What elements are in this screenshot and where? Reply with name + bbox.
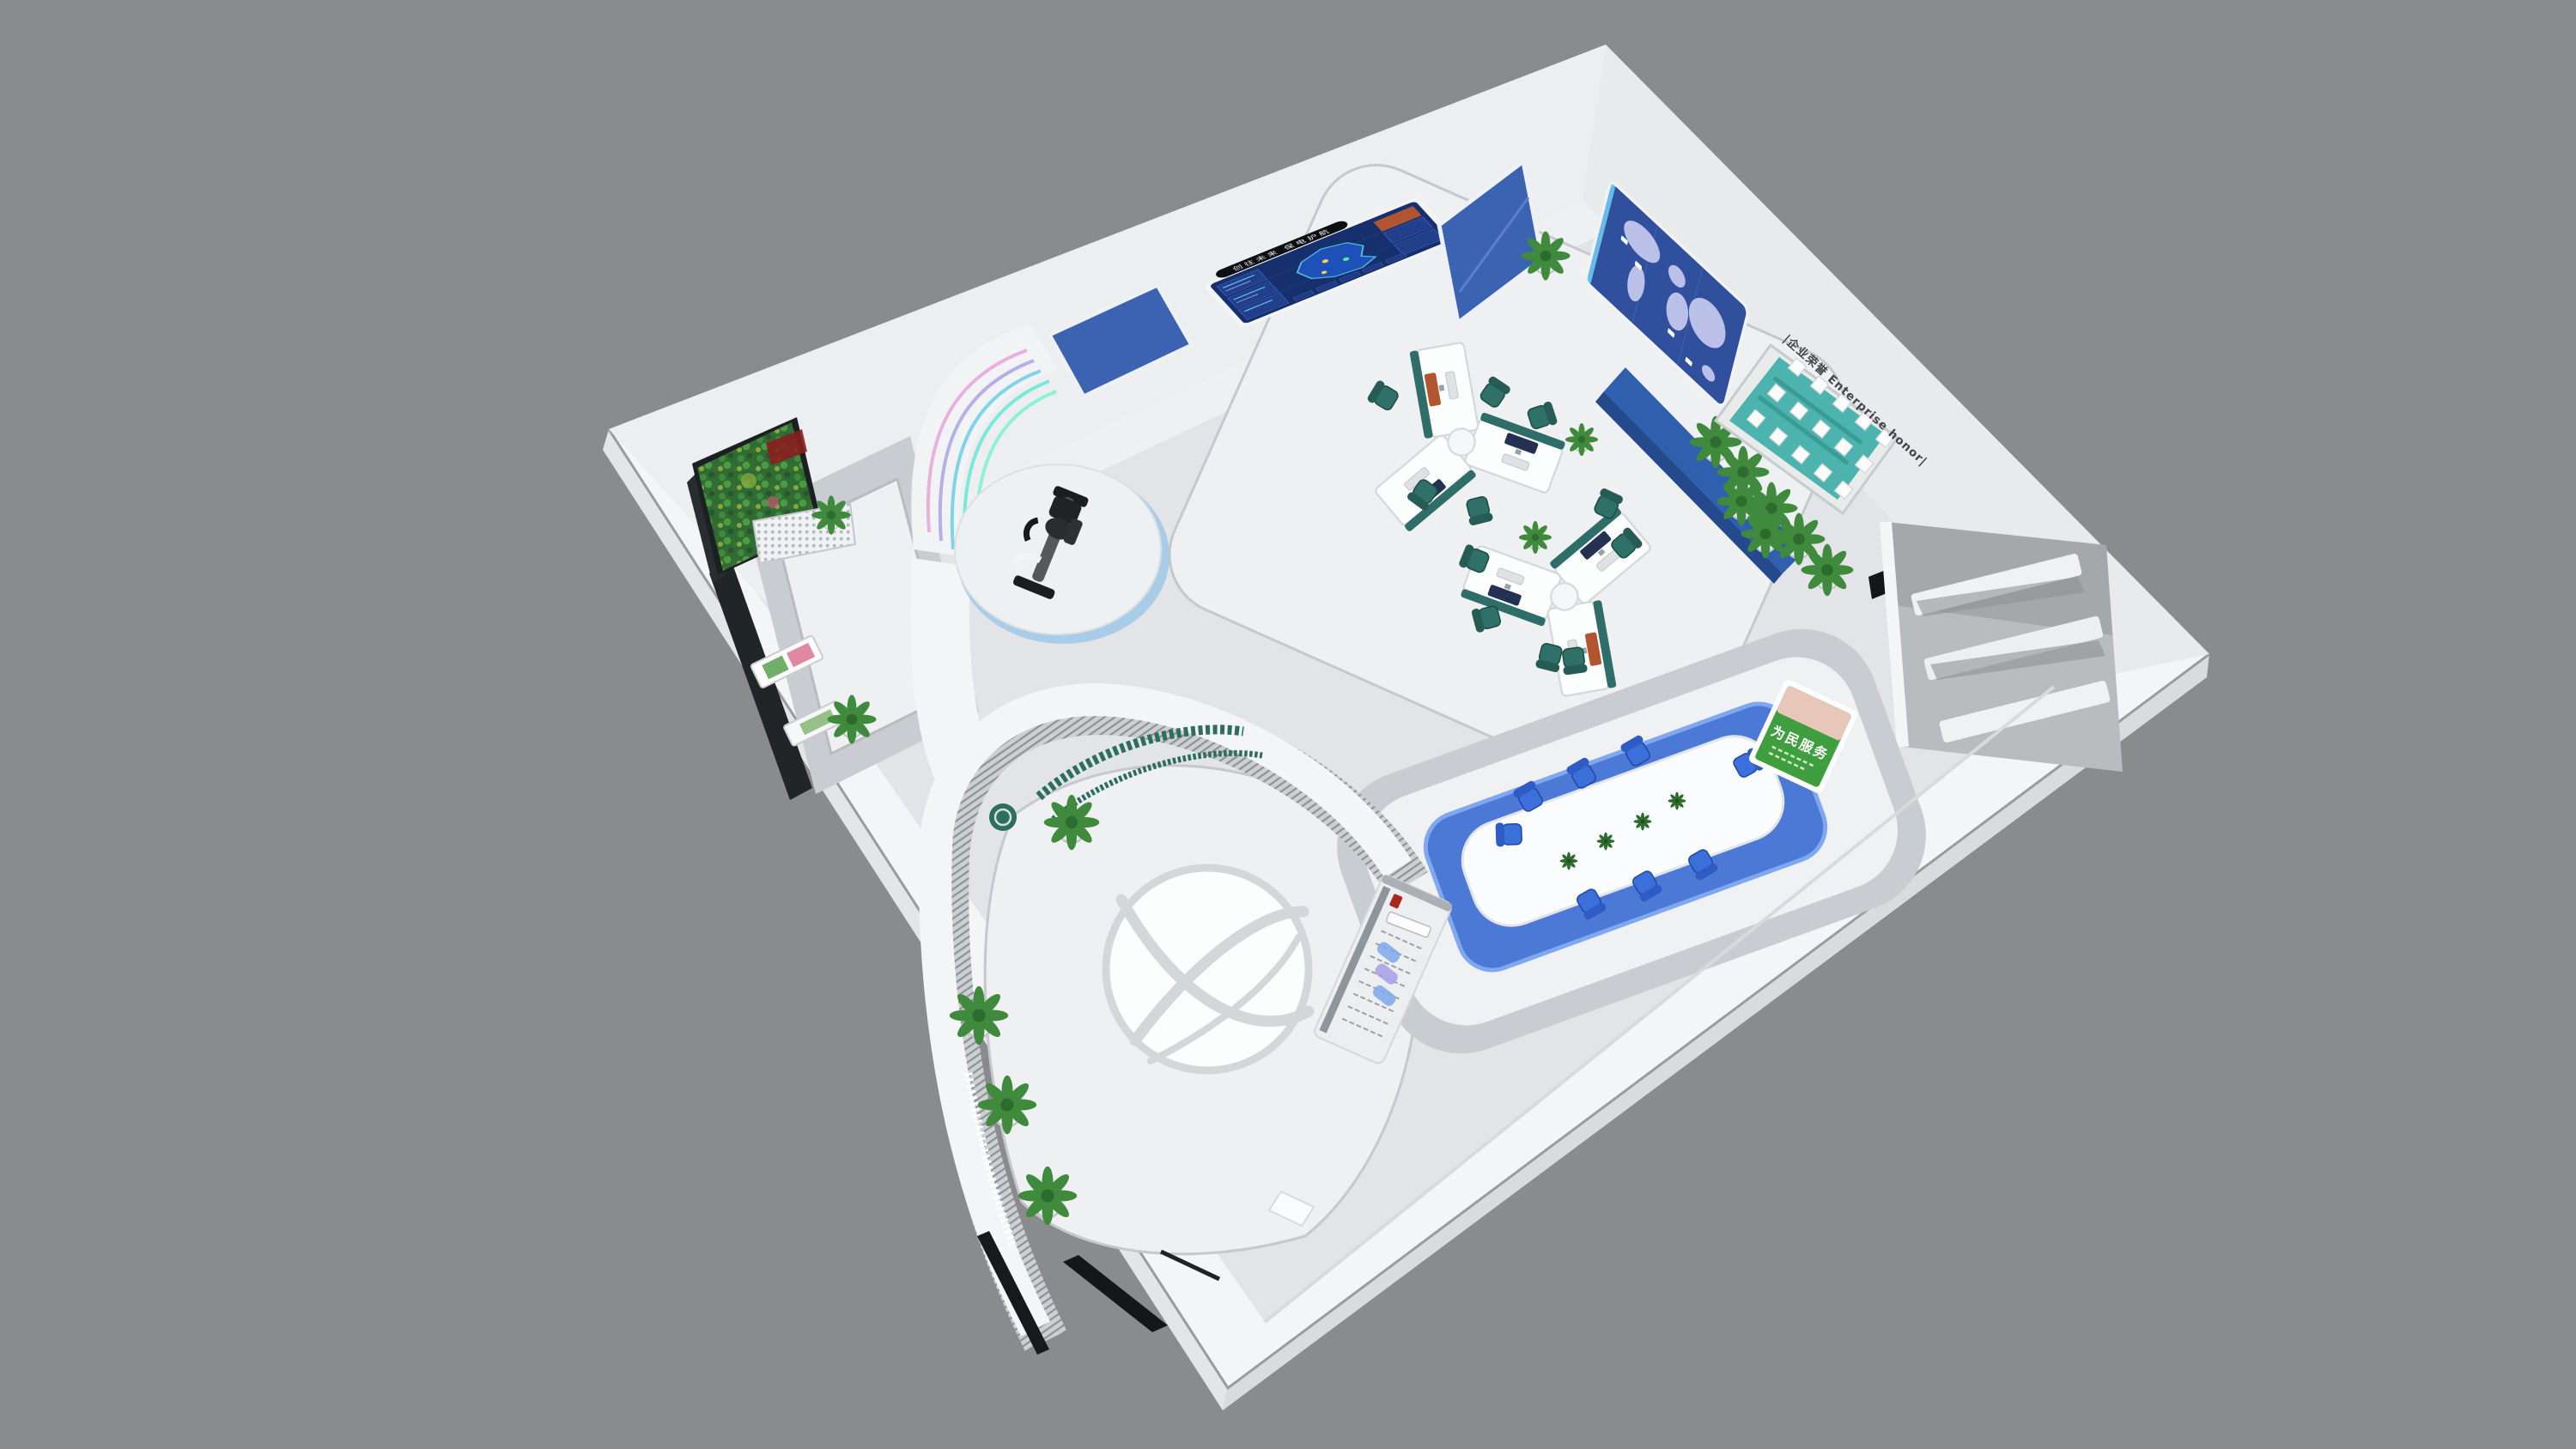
plant-pot: [828, 695, 877, 744]
conference-chair: [1496, 822, 1522, 847]
plant-pot: [1801, 544, 1854, 597]
plant-pot: [1018, 1167, 1077, 1225]
floor-globe-logo: [1106, 868, 1309, 1070]
honor-shelf-plant: [1717, 477, 1766, 526]
desk-plant: [1565, 423, 1598, 456]
render-canvas: 创往未来 保电护航: [0, 0, 2576, 1449]
plant-pot: [950, 986, 1008, 1045]
round-emblem-logo: [989, 803, 1017, 831]
corner-plant-pot: [1522, 232, 1571, 281]
isometric-showroom: 创往未来 保电护航: [0, 0, 2576, 1449]
plant-pot: [1044, 795, 1100, 851]
desk-plant: [1519, 521, 1552, 554]
plant-pot: [811, 495, 851, 535]
honor-shelf-plant: [1741, 510, 1790, 559]
plant-pot: [978, 1076, 1036, 1134]
